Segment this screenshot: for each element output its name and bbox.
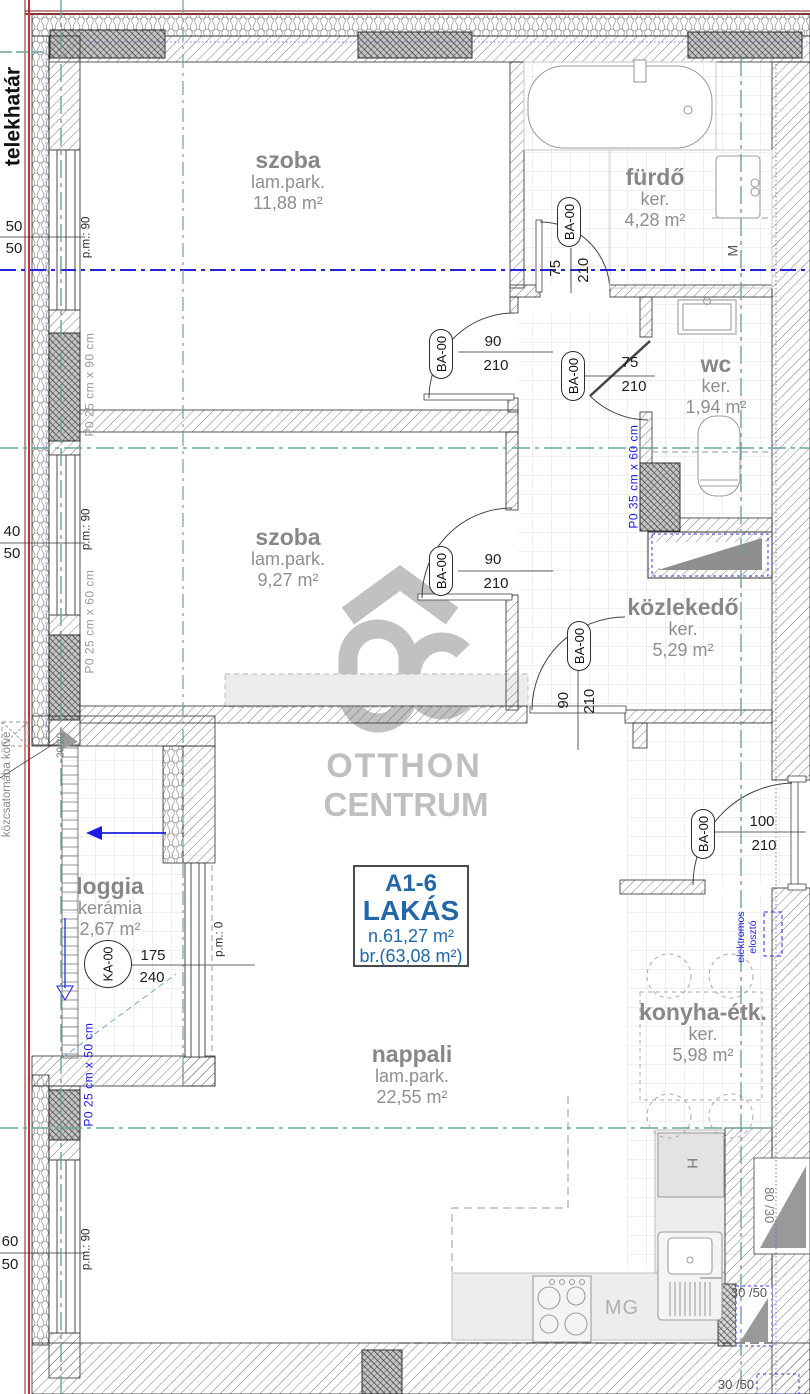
room-name: szoba <box>188 148 388 172</box>
dishwasher-label: MG <box>592 1297 652 1319</box>
washing-machine-label: M <box>725 241 740 261</box>
spout-dim: 20/20 <box>56 726 67 766</box>
door-dim: 210 <box>476 576 516 593</box>
room-label-konyha: konyha-étk. ker. 5,98 m² <box>603 1000 803 1067</box>
apartment-info-box: A1-6 LAKÁS n.61,27 m² br.(63,08 m²) <box>353 865 469 967</box>
room-area: 5,98 m² <box>603 1045 803 1066</box>
pillar <box>50 30 802 58</box>
window-3 <box>49 1160 80 1333</box>
parapet-label: p.m.: 90 <box>81 1219 94 1279</box>
room-name: loggia <box>30 874 190 898</box>
apartment-code: A1-6 <box>355 871 467 896</box>
room-name: fürdő <box>555 165 755 189</box>
room-label-loggia: loggia kerámia 2,67 m² <box>30 874 190 941</box>
pillar-label: P0 25 cm x 60 cm <box>83 567 96 677</box>
door-tag-wc: BA-00 <box>561 351 585 401</box>
pillar-label: P0 35 cm x 60 cm <box>627 422 640 532</box>
room-area: 9,27 m² <box>188 570 388 591</box>
room-name: konyha-étk. <box>603 1000 803 1024</box>
fridge-label: H <box>683 1153 700 1173</box>
window-dim: 40 <box>0 524 32 541</box>
parapet-label: p.m.: 90 <box>81 207 94 267</box>
room-finish: lam.park. <box>188 172 388 193</box>
door-dim: 210 <box>582 681 599 721</box>
door-dim: 210 <box>744 838 784 855</box>
shaft-label: 30 /50 <box>706 1378 766 1392</box>
door-tag-loggia: KA-00 <box>84 940 132 988</box>
room-finish: ker. <box>583 619 783 640</box>
wc-basin <box>678 300 736 334</box>
room-label-furdo: fürdő ker. 4,28 m² <box>555 165 755 232</box>
room-label-kozlekedo: közlekedő ker. 5,29 m² <box>583 595 783 662</box>
room-finish: ker. <box>603 1024 803 1045</box>
shaft-label: 80 /30 <box>762 1175 776 1235</box>
room-name: közlekedő <box>583 595 783 619</box>
wardrobe <box>225 674 528 707</box>
door-tag-furdo: BA-00 <box>557 197 581 247</box>
room-finish: ker. <box>555 189 755 210</box>
room-area: 5,29 m² <box>583 640 783 661</box>
window-dim: 60 <box>0 1234 30 1251</box>
door-dim: 240 <box>132 970 172 987</box>
electrical-label: elektromos elosztó <box>735 911 759 963</box>
pillar-label: P0 25 cm x 50 cm <box>82 1020 95 1130</box>
door-dim: 100 <box>742 814 782 831</box>
door-dim: 90 <box>473 552 513 569</box>
watermark-line1: OTTHON <box>304 748 504 785</box>
room-name: nappali <box>312 1042 512 1066</box>
door-tag-kozlekedo: BA-00 <box>567 621 591 671</box>
bathtub <box>528 66 712 148</box>
room-finish: lam.park. <box>312 1066 512 1087</box>
room-label-nappali: nappali lam.park. 22,55 m² <box>312 1042 512 1109</box>
property-line-label: telekhatár <box>1 57 24 177</box>
door-tag-szoba1: BA-00 <box>429 329 453 379</box>
door-dim: 90 <box>556 680 573 720</box>
door-dim: 75 <box>610 355 650 372</box>
door-dim: 75 <box>548 248 565 288</box>
door-tag-label: KA-00 <box>101 947 115 982</box>
shaft-label: 30 /50 <box>719 1286 779 1300</box>
room-area: 2,67 m² <box>30 919 190 940</box>
room-area: 4,28 m² <box>555 210 755 231</box>
door-dim: 90 <box>473 334 513 351</box>
door-dim: 210 <box>614 379 654 396</box>
window-2 <box>49 455 80 615</box>
watermark-line2: CENTRUM <box>306 787 506 823</box>
sewer-note: közcsatornába kötve <box>1 717 14 852</box>
apartment-gross-area: br.(63,08 m²) <box>355 946 467 967</box>
stove <box>533 1276 591 1342</box>
parapet-label: p.m.: 0 <box>214 914 227 964</box>
floor-plan: telekhatár szoba lam.park. 11,88 m² fürd… <box>0 0 810 1394</box>
room-label-szoba1: szoba lam.park. 11,88 m² <box>188 148 388 215</box>
window-1 <box>49 150 80 310</box>
door-tag-entrance: BA-00 <box>691 809 715 859</box>
door-dim: 175 <box>133 948 173 965</box>
door-dim: 210 <box>476 358 516 375</box>
window-dim: 50 <box>0 1257 30 1274</box>
room-label-szoba2: szoba lam.park. 9,27 m² <box>188 525 388 592</box>
room-name: szoba <box>188 525 388 549</box>
room-area: 1,94 m² <box>616 397 810 418</box>
window-dim: 50 <box>0 219 34 236</box>
door-tag-szoba2: BA-00 <box>429 546 453 596</box>
room-finish: kerámia <box>30 898 190 919</box>
room-area: 11,88 m² <box>188 193 388 214</box>
pillar-label: P0 25 cm x 90 cm <box>83 330 96 440</box>
parapet-label: p.m.: 90 <box>81 499 94 559</box>
room-area: 22,55 m² <box>312 1087 512 1108</box>
toilet <box>698 416 740 496</box>
door-dim: 210 <box>576 250 593 290</box>
window-dim: 50 <box>0 241 34 258</box>
apartment-type: LAKÁS <box>355 896 467 925</box>
window-dim: 50 <box>0 546 32 563</box>
apartment-net-area: n.61,27 m² <box>355 926 467 947</box>
room-finish: lam.park. <box>188 549 388 570</box>
